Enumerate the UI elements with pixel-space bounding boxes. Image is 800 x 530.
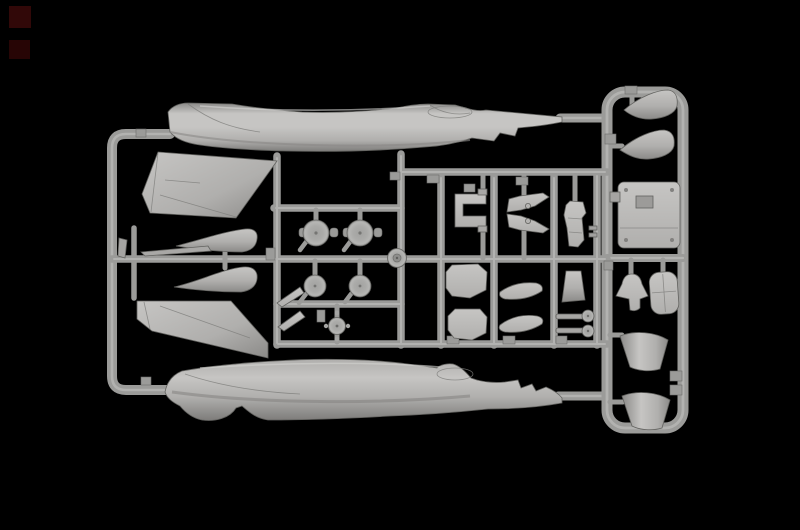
hatch-panel-1 xyxy=(446,264,487,298)
nose-cone-half-2 xyxy=(174,267,257,292)
corner-mark-top xyxy=(9,6,31,28)
fuselage-half-upper xyxy=(168,103,562,151)
gear-door-pair xyxy=(507,193,549,233)
seat-cushion xyxy=(649,271,680,315)
tail-fin-half-upper xyxy=(142,152,277,218)
canopy-side-panel-1 xyxy=(500,283,543,300)
wheel-disc-2 xyxy=(349,275,371,297)
gate-tab xyxy=(317,310,325,322)
gate-tab xyxy=(556,336,567,344)
gate-tab xyxy=(625,86,637,94)
intake-splitter-bracket xyxy=(455,189,487,232)
gate-tab xyxy=(390,172,400,180)
control-column xyxy=(616,274,648,311)
gate-tab xyxy=(141,377,151,385)
gate-tab xyxy=(670,385,682,395)
gate-tab xyxy=(604,261,613,270)
photo-stage xyxy=(0,0,800,530)
actuator-rod-1 xyxy=(556,310,594,322)
thin-stabilizer xyxy=(141,246,211,256)
gate-tab xyxy=(464,184,475,192)
small-blade-left xyxy=(118,238,127,258)
actuator-rod-2 xyxy=(556,325,594,337)
nose-wheel xyxy=(324,311,350,342)
wheel-disc-1 xyxy=(304,275,326,297)
tail-fin-half-lower xyxy=(137,301,268,358)
seat-fitting xyxy=(589,226,597,230)
corner-mark-bottom xyxy=(9,40,30,59)
exhaust-nozzle-half-1 xyxy=(620,333,668,371)
ejection-seat xyxy=(564,201,597,247)
gate-tab xyxy=(503,336,515,344)
gate-tab xyxy=(605,134,616,144)
hub-disc xyxy=(388,249,407,268)
radome-half-2 xyxy=(620,130,674,159)
seat-fitting xyxy=(589,233,597,237)
sprue-photo xyxy=(0,0,800,530)
gate-tab xyxy=(670,371,682,381)
gate-tab xyxy=(516,177,528,185)
gate-tab xyxy=(136,129,146,137)
canopy-side-panel-2 xyxy=(499,315,543,332)
fuselage-half-lower xyxy=(165,359,562,420)
gate-tab xyxy=(266,248,275,260)
pitot-blade-2 xyxy=(278,311,305,331)
stabilizer-fin-small xyxy=(562,271,585,302)
cockpit-tub xyxy=(610,182,680,248)
hatch-panel-2 xyxy=(448,309,487,340)
gate-tab xyxy=(427,175,439,183)
